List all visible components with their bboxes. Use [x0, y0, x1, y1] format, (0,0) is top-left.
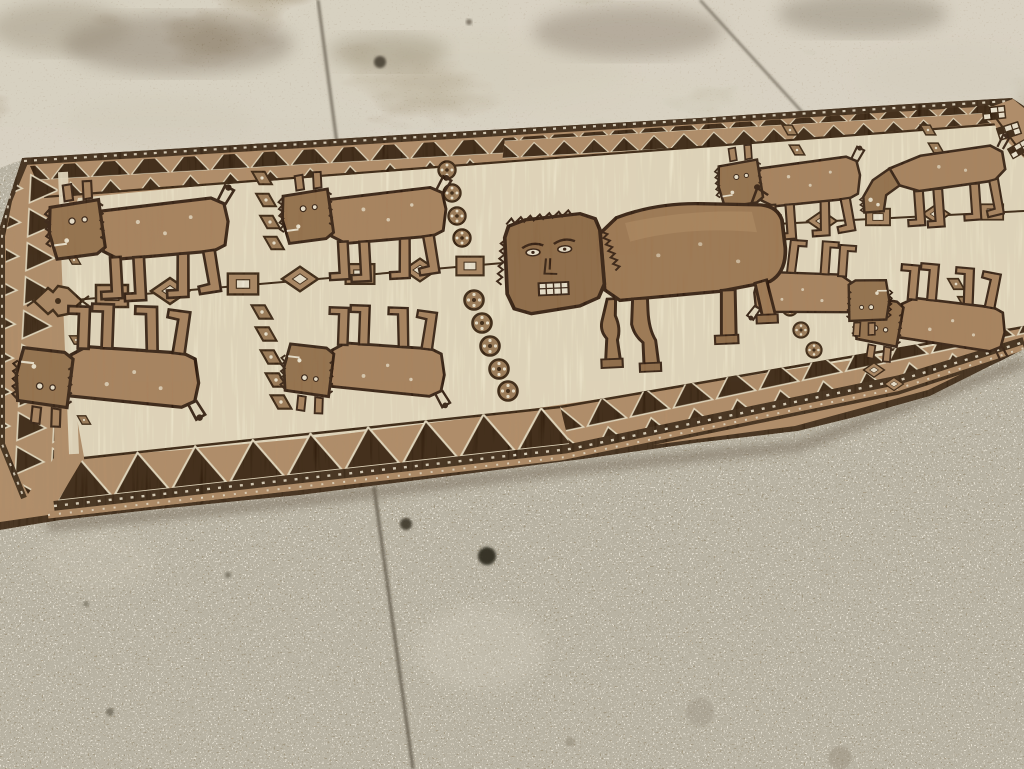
floor-spot: [478, 547, 496, 565]
floor-spot: [400, 518, 412, 530]
photo-of-rug-on-concrete-floor: [0, 0, 1024, 769]
floor-spot: [565, 737, 575, 747]
floor-spot: [828, 746, 852, 769]
floor-spot: [83, 601, 89, 607]
floor-stain: [36, 530, 156, 590]
floor-spot: [106, 708, 114, 716]
floor-spot: [686, 698, 714, 726]
floor-stain: [328, 34, 448, 70]
floor-stain: [533, 6, 723, 58]
floor-stain: [416, 606, 544, 690]
floor-spot: [225, 572, 231, 578]
scene-canvas: [0, 0, 1024, 769]
floor-spot: [466, 19, 472, 25]
floor-spot: [374, 56, 386, 68]
